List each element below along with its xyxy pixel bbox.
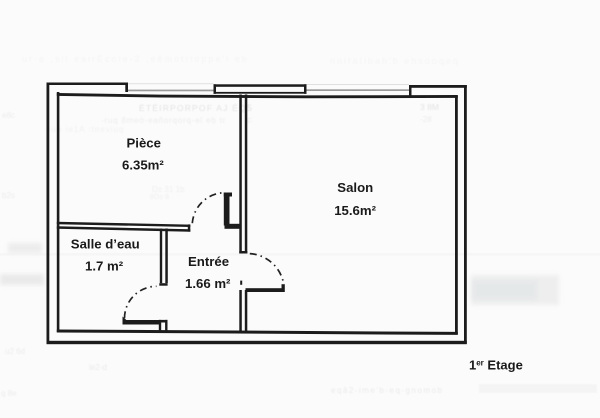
svg-text:5: 5 xyxy=(247,103,252,113)
svg-text:8Ò± 8: 8Ò± 8 xyxy=(150,192,169,201)
svg-text:le2-d: le2-d xyxy=(89,363,107,372)
svg-text:-28: -28 xyxy=(420,115,432,124)
svg-text:15.6m²: 15.6m² xyxy=(334,203,376,218)
svg-text:6.35m²: 6.35m² xyxy=(122,158,164,173)
svg-text:D± 31 1b: D± 31 1b xyxy=(152,185,185,194)
svg-text:Pièce: Pièce xyxy=(127,136,161,151)
svg-text:1.7 m²: 1.7 m² xyxy=(85,258,124,273)
svg-text:u2 6d: u2 6d xyxy=(5,347,25,356)
svg-text:noitatibah'b ehsooqeq: noitatibah'b ehsooqeq xyxy=(330,56,460,66)
svg-text:eqâ2-ime'b-eq-gnomob: eqâ2-ime'b-eq-gnomob xyxy=(331,386,443,395)
svg-text:b2s: b2s xyxy=(2,191,15,200)
svg-text:Salle d’eau: Salle d’eau xyxy=(71,237,140,252)
svg-text:q 8e: q 8e xyxy=(1,389,17,398)
svg-text:-ruq 8meò-eañorqorq-el eb tr: -ruq 8meò-eañorqorq-el eb tr xyxy=(101,116,226,125)
svg-text:F: F xyxy=(247,116,252,126)
svg-text:Salon: Salon xyxy=(337,180,373,195)
svg-text:3 8M: 3 8M xyxy=(420,102,439,112)
svg-text:ÈTÉIRPORPOF AJ ÉQ: ÈTÉIRPORPOF AJ ÉQ xyxy=(139,103,247,113)
svg-text:1.66 m²: 1.66 m² xyxy=(185,276,231,291)
svg-text:e8c: e8c xyxy=(2,111,15,120)
svg-text:ur·e ,sil eairÉcole-2 ,eêmotrl: ur·e ,sil eairÉcole-2 ,eêmotrloppe'l eb xyxy=(22,54,249,64)
svg-text:Entrée: Entrée xyxy=(188,254,229,269)
